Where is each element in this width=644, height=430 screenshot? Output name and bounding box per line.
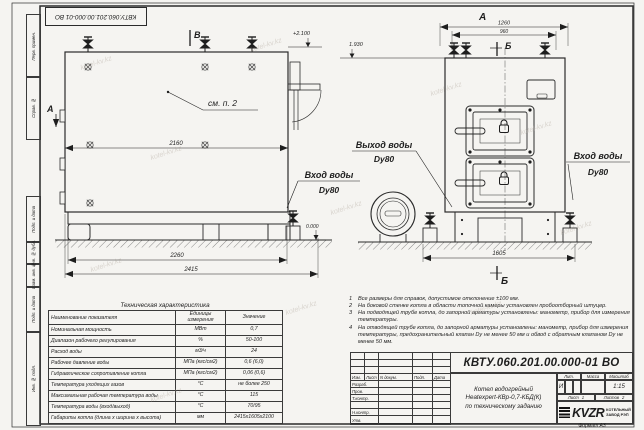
view-marker-a-front: А <box>478 12 486 23</box>
param-value: 0,6 (6,0) <box>226 358 283 369</box>
valve-symbol <box>426 213 435 228</box>
valve-symbol <box>541 43 550 58</box>
param-unit: МВт <box>176 325 226 336</box>
param-unit: °С <box>176 391 226 402</box>
dim-side-total: 2415 <box>183 267 198 273</box>
note-number: 2 <box>349 303 358 310</box>
col-izm: Изм. <box>351 374 365 381</box>
param-value: 0,7 <box>226 325 283 336</box>
param-value: 50-100 <box>226 336 283 347</box>
padlock-icon <box>500 172 509 185</box>
corner-doc-number-box: КВТУ.060.201.00.000-01 ВО <box>45 7 147 26</box>
param-value: 2415х1605х2100 <box>226 413 283 424</box>
param-unit: °С <box>176 402 226 413</box>
param-name: Номинальная мощность <box>49 325 176 336</box>
valve-symbol <box>450 43 459 58</box>
col-podp: Подп. <box>413 374 433 381</box>
tech-table-title: Техническая характеристика <box>48 302 282 309</box>
table-row: Габариты котла (длина х ширина х высота)… <box>49 413 283 424</box>
param-name: Рабочее давление воды <box>49 358 176 369</box>
margin-cell-podp-data-1: Подп. и дата <box>26 196 41 243</box>
margin-cell-label: Перв. примен. <box>31 32 36 61</box>
revision-header-row: Изм. Лист N докум. Подп. Дата <box>351 374 451 381</box>
dim-front-top: 960 <box>500 29 509 35</box>
title-block-left-table: Изм. Лист N докум. Подп. Дата Разраб. Пр… <box>350 352 451 425</box>
margin-cell-perv-primen: Перв. примен. <box>26 14 41 78</box>
column-header: Единицы измерения <box>176 311 226 325</box>
note-number: 4 <box>349 325 358 346</box>
outlet-flange <box>371 192 415 242</box>
param-unit: % <box>176 336 226 347</box>
inlet-right-label: Вход воды <box>574 151 623 161</box>
col-data: Дата <box>433 374 451 381</box>
row-utv: Утв. <box>351 416 379 425</box>
param-value: 24 <box>226 347 283 358</box>
margin-cell-label: Подп. и дата <box>31 206 36 233</box>
param-unit: МПа (кгс/см2) <box>176 358 226 369</box>
lit-empty-cell <box>565 380 573 394</box>
param-name: Габариты котла (длина х ширина х высота) <box>49 413 176 424</box>
table-row: Температура воды (вход/выход)°С70/95 <box>49 402 283 413</box>
doc-number: КВТУ.060.201.00.000-01 ВО <box>463 357 619 369</box>
param-name: Температура воды (вход/выход) <box>49 402 176 413</box>
param-name: Расход воды <box>49 347 176 358</box>
kvzr-logo-icon <box>559 407 570 418</box>
sheet-number-cell: Лист1 <box>557 394 595 401</box>
outlet-dn-label: Dy80 <box>374 154 395 164</box>
param-unit: °С <box>176 380 226 391</box>
note-text: На подводящей трубе котла, до запорной а… <box>358 310 631 324</box>
tech-table: Техническая характеристика Наименование … <box>48 302 282 424</box>
valve-symbol <box>84 37 93 52</box>
inlet-mid-dn-label: Dy80 <box>319 185 340 195</box>
table-row: Номинальная мощностьМВт0,7 <box>49 325 283 336</box>
table-row: Диапазон рабочего регулирования%50-100 <box>49 336 283 347</box>
dim-front-total: 1260 <box>498 21 511 27</box>
column-header: Наименование показателя <box>49 311 176 325</box>
margin-cell-label: Подп. и дата <box>31 296 36 323</box>
margin-cell-inv-podl: Инв. № подл. <box>26 331 41 426</box>
param-name: Температура уходящих газов <box>49 380 176 391</box>
note-text: На отводящей трубе котла, до запорной ар… <box>358 325 631 346</box>
dim-front-base: 1605 <box>492 251 506 257</box>
table-header-row: Наименование показателя Единицы измерени… <box>49 311 283 325</box>
drawing-sheet: kotel-kv.kz kotel-kv.kz kotel-kv.kz kote… <box>0 0 644 430</box>
row-razrab: Разраб. <box>351 381 379 388</box>
table-row: Расход водым3/ч24 <box>49 347 283 358</box>
corner-doc-number: КВТУ.060.201.00.000-01 ВО <box>55 13 136 20</box>
doc-number-cell: КВТУ.060.201.00.000-01 ВО <box>450 352 633 373</box>
column-header: Значение <box>226 311 283 325</box>
col-list: Лист <box>365 374 379 381</box>
param-value: 70/95 <box>226 402 283 413</box>
format-label: Формат А3 <box>552 423 632 429</box>
param-value: не более 250 <box>226 380 283 391</box>
table-row: Рабочее давление водыМПа (кгс/см2)0,6 (6… <box>49 358 283 369</box>
margin-cell-podp-data-2: Подп. и дата <box>26 286 41 333</box>
valve-symbol <box>248 37 257 52</box>
note-number: 3 <box>349 310 358 324</box>
param-unit: мм <box>176 413 226 424</box>
row-nkontr: Н.контр. <box>351 409 379 416</box>
scale-value-cell: 1:15 <box>605 380 633 394</box>
table-row: Максимальная рабочая температура воды°С1… <box>49 391 283 402</box>
see-note-label: см. п. 2 <box>208 98 237 108</box>
elevation-top: +2.100 <box>293 31 311 37</box>
lit-value-cell: И <box>557 380 565 394</box>
inlet-right-dn-label: Dy80 <box>588 167 609 177</box>
notes: 1Все размеры для справок, допустимое отк… <box>349 296 631 346</box>
product-name-line: по техническому заданию <box>465 403 541 411</box>
product-name-line: Heatexpert-КВр-0,7-КБД(К) <box>466 394 542 402</box>
product-name-line: Котел водогрейный <box>474 386 533 394</box>
section-marker-b-top: Б <box>505 41 512 51</box>
valve-symbol <box>566 213 575 228</box>
margin-cell-label: Инв. № подл. <box>31 365 36 392</box>
margin-cell-sprav: Справ. № <box>26 76 41 140</box>
elevation-shed: 1.930 <box>349 42 364 48</box>
inlet-mid-label: Вход воды <box>305 170 354 180</box>
kvzr-logo-text: KVZR <box>572 406 604 420</box>
param-name: Максимальная рабочая температура воды <box>49 391 176 402</box>
table-row: Температура уходящих газов°Сне более 250 <box>49 380 283 391</box>
mass-header: Масса <box>581 373 605 380</box>
side-view <box>55 37 332 248</box>
valve-symbol <box>462 43 471 58</box>
valve-symbol <box>201 37 210 52</box>
margin-cell-vzam-inv: Взам. инв. № <box>26 263 41 288</box>
row-prov: Пров. <box>351 388 379 395</box>
section-marker-b-bottom: Б <box>501 276 508 287</box>
dim-side-top: 2160 <box>168 141 183 147</box>
param-unit: МПа (кгс/см2) <box>176 369 226 380</box>
kvzr-logo-caption: КОТЕЛЬНЫЙ ЗАВОД РЭП <box>606 408 631 417</box>
note-number: 1 <box>349 296 358 303</box>
mass-value-cell <box>581 380 605 394</box>
param-name: Гидравлическое сопротивление котла <box>49 369 176 380</box>
param-value: 115 <box>226 391 283 402</box>
note-item: 4На отводящей трубе котла, до запорной а… <box>349 325 631 346</box>
sheets-total-cell: Листов2 <box>595 394 633 401</box>
scale-header: Масштаб <box>605 373 633 380</box>
param-name: Диапазон рабочего регулирования <box>49 336 176 347</box>
product-name-cell: Котел водогрейный Heatexpert-КВр-0,7-КБД… <box>450 373 557 424</box>
kvzr-logo-cell: KVZR КОТЕЛЬНЫЙ ЗАВОД РЭП <box>557 401 633 424</box>
dim-side-base: 2260 <box>169 253 184 259</box>
col-docnum: N докум. <box>379 374 413 381</box>
section-marker-v: В <box>194 30 201 40</box>
param-value: 0,06 (0,6) <box>226 369 283 380</box>
margin-cell-label: Справ. № <box>31 98 36 118</box>
elevation-zero: 0.000 <box>306 224 319 230</box>
view-marker-a-side: А <box>46 104 54 114</box>
outlet-label: Выход воды <box>356 140 413 150</box>
padlock-icon <box>500 120 509 133</box>
lit-header: Лит. <box>557 373 581 380</box>
note-item: 3На подводящей трубе котла, до запорной … <box>349 310 631 324</box>
table-row: Гидравлическое сопротивление котлаМПа (к… <box>49 369 283 380</box>
margin-cell-label: Взам. инв. № <box>31 262 36 289</box>
lit-empty-cell <box>573 380 581 394</box>
row-tkontr: Т.контр. <box>351 395 379 402</box>
param-unit: м3/ч <box>176 347 226 358</box>
